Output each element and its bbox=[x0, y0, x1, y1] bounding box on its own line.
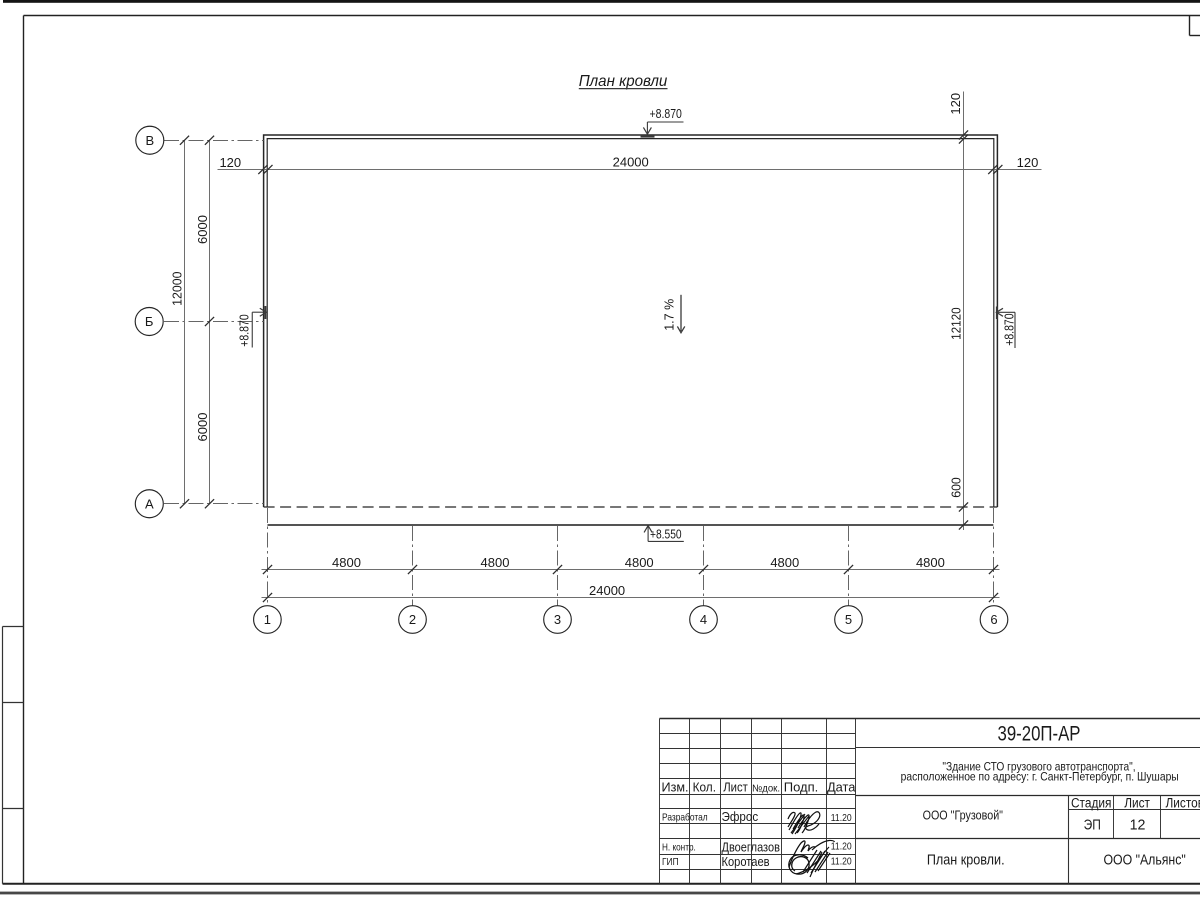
svg-text:План кровли: План кровли bbox=[579, 73, 668, 90]
svg-text:Подп.: Подп. bbox=[784, 779, 819, 794]
svg-text:24000: 24000 bbox=[613, 155, 649, 170]
svg-text:Разработал: Разработал bbox=[662, 812, 708, 823]
svg-text:4800: 4800 bbox=[332, 555, 361, 570]
svg-text:4800: 4800 bbox=[481, 555, 510, 570]
svg-text:3: 3 bbox=[554, 612, 561, 627]
svg-text:120: 120 bbox=[948, 93, 963, 115]
svg-text:4800: 4800 bbox=[625, 555, 654, 570]
svg-text:Эфрос: Эфрос bbox=[722, 810, 759, 824]
svg-text:Дата: Дата bbox=[827, 779, 856, 794]
svg-text:+8.870: +8.870 bbox=[650, 108, 682, 121]
svg-text:расположенное по адресу: г. Са: расположенное по адресу: г. Санкт-Петерб… bbox=[901, 771, 1179, 784]
svg-text:6000: 6000 bbox=[195, 215, 210, 244]
svg-text:Б: Б bbox=[145, 314, 154, 329]
svg-text:39-20П-АР: 39-20П-АР bbox=[998, 723, 1081, 746]
svg-text:Коротаев: Коротаев bbox=[722, 855, 770, 870]
svg-text:6000: 6000 bbox=[195, 413, 210, 442]
svg-text:Кол.: Кол. bbox=[693, 780, 716, 795]
svg-text:ЭП: ЭП bbox=[1084, 816, 1101, 833]
svg-text:1: 1 bbox=[264, 612, 271, 627]
svg-text:План кровли.: План кровли. bbox=[927, 852, 1005, 868]
svg-text:Листов: Листов bbox=[1166, 795, 1200, 811]
svg-text:12120: 12120 bbox=[949, 307, 964, 340]
svg-text:1.7 %: 1.7 % bbox=[662, 299, 676, 331]
svg-text:ООО "Грузовой": ООО "Грузовой" bbox=[923, 809, 1003, 823]
svg-text:120: 120 bbox=[219, 155, 241, 170]
svg-text:Изм.: Изм. bbox=[661, 779, 688, 794]
svg-text:120: 120 bbox=[1017, 155, 1039, 170]
svg-text:12000: 12000 bbox=[170, 272, 184, 306]
svg-text:11.20: 11.20 bbox=[831, 812, 852, 824]
svg-text:+8.870: +8.870 bbox=[239, 314, 252, 346]
svg-text:Н. контр.: Н. контр. bbox=[662, 842, 696, 853]
svg-text:Двоеглазов: Двоеглазов bbox=[722, 841, 780, 855]
svg-text:11.20: 11.20 bbox=[831, 856, 852, 868]
svg-text:Стадия: Стадия bbox=[1071, 795, 1111, 811]
svg-text:+8.550: +8.550 bbox=[650, 528, 682, 541]
svg-text:5: 5 bbox=[845, 612, 852, 627]
svg-text:6: 6 bbox=[990, 612, 997, 627]
svg-text:11.20: 11.20 bbox=[831, 841, 852, 853]
svg-text:2: 2 bbox=[409, 612, 416, 627]
svg-text:4800: 4800 bbox=[770, 555, 799, 570]
svg-text:№док.: №док. bbox=[752, 783, 780, 794]
svg-text:А: А bbox=[145, 496, 154, 511]
svg-text:ГИП: ГИП bbox=[662, 856, 679, 868]
svg-text:600: 600 bbox=[949, 477, 963, 498]
svg-text:4: 4 bbox=[700, 612, 707, 627]
svg-text:24000: 24000 bbox=[589, 583, 625, 598]
svg-text:12: 12 bbox=[1130, 817, 1146, 833]
svg-text:Лист: Лист bbox=[723, 780, 748, 795]
svg-text:Лист: Лист bbox=[1124, 795, 1150, 811]
svg-text:4800: 4800 bbox=[916, 555, 945, 570]
svg-text:В: В bbox=[145, 133, 154, 148]
svg-text:ООО "Альянс": ООО "Альянс" bbox=[1103, 852, 1186, 868]
